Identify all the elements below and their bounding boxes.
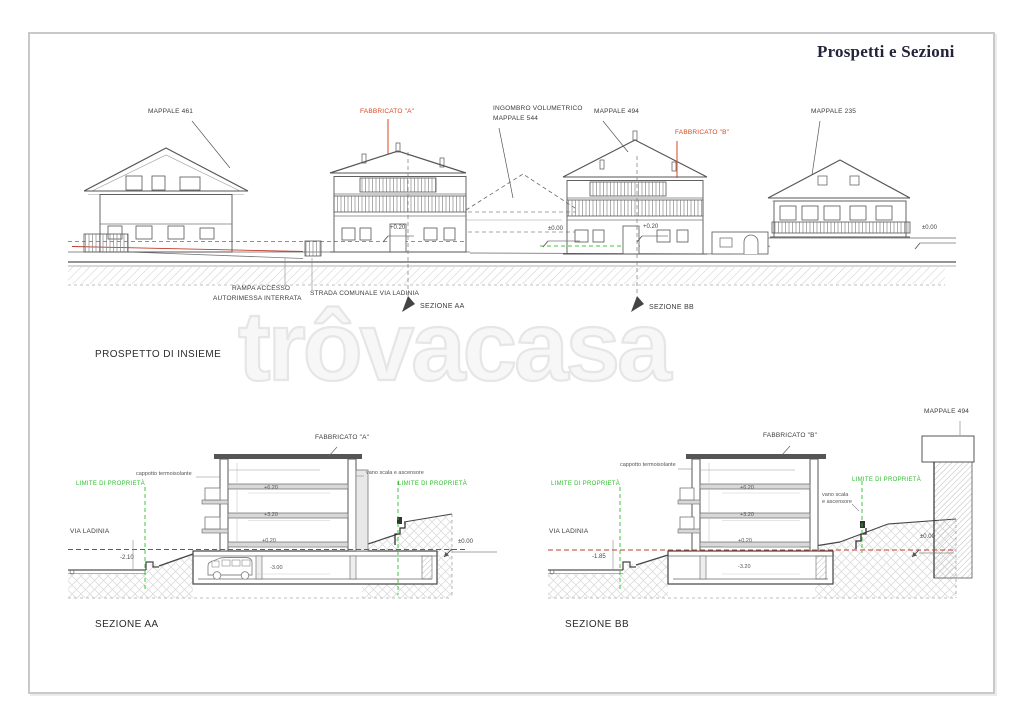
quota-right-000: ±0.00 (922, 225, 937, 232)
label-ingombro-volumetrico: INGOMBRO VOLUMETRICO (493, 105, 583, 112)
label-mappale-235: MAPPALE 235 (811, 108, 856, 115)
aa-label-fabbricato: FABBRICATO "A" (315, 434, 369, 441)
label-mappale-461: MAPPALE 461 (148, 108, 193, 115)
label-rampa-2: AUTORIMESSA INTERRATA (213, 295, 302, 302)
house-mappale-235 (768, 160, 910, 237)
bb-piano-2: +6.20 (740, 485, 754, 491)
label-rampa-1: RAMPA ACCESSO (232, 285, 290, 292)
bb-label-mappale-494: MAPPALE 494 (924, 408, 969, 415)
page-title: Prospetti e Sezioni (817, 42, 955, 62)
label-ingombro-mappale: MAPPALE 544 (493, 115, 538, 122)
aa-label-via-ladinia: VIA LADINIA (70, 528, 109, 535)
bb-piano-0: +0.20 (738, 538, 752, 544)
label-fabbricato-b: FABBRICATO "B" (675, 129, 729, 136)
ingombro-volumetrico-outline (466, 174, 578, 232)
caption-sezione-aa: SEZIONE AA (95, 619, 158, 631)
aa-piano-2: +6.20 (264, 485, 278, 491)
label-strada: STRADA COMUNALE VIA LADINIA (310, 290, 419, 297)
bb-label-vano-scala-1: vano scala (822, 492, 848, 498)
quota-b-000: ±0.00 (548, 226, 563, 233)
marker-sezione-aa: SEZIONE AA (420, 303, 465, 311)
bb-interrato: -3.20 (738, 564, 751, 570)
section-aa (68, 447, 497, 598)
aa-piano-0: +0.20 (262, 538, 276, 544)
aa-label-vano-scala: vano scala e ascensore (366, 470, 424, 476)
aa-limite-left: LIMITE DI PROPRIETÀ (76, 481, 145, 488)
bb-limite-right: LIMITE DI PROPRIETÀ (852, 477, 921, 484)
elevation-ground (68, 238, 956, 290)
aa-limite-right: LIMITE DI PROPRIETÀ (398, 481, 467, 488)
aa-label-cappotto: cappotto termoisolante (136, 471, 192, 477)
annex-garages (712, 232, 768, 254)
house-mappale-461 (84, 148, 248, 252)
house-fabbricato-b (563, 131, 707, 254)
bb-label-via-ladinia: VIA LADINIA (549, 528, 588, 535)
caption-prospetto: PROSPETTO DI INSIEME (95, 349, 221, 361)
aa-interrato: -3.00 (270, 565, 283, 571)
drawing-sheet: Prospetti e Sezioni trôvacasa MAPPALE 46… (0, 0, 1024, 723)
quota-a-020: +0.20 (390, 225, 405, 232)
aa-quota-zero: ±0.00 (458, 539, 473, 546)
bb-label-fabbricato: FABBRICATO "B" (763, 432, 817, 439)
quota-b-020: +0.20 (643, 224, 658, 231)
marker-sezione-bb: SEZIONE BB (649, 304, 694, 312)
label-mappale-494: MAPPALE 494 (594, 108, 639, 115)
bb-label-vano-scala-2: e ascensore (822, 499, 852, 505)
aa-quota-via: -2.10 (120, 555, 134, 562)
aa-piano-1: +3.20 (264, 512, 278, 518)
label-fabbricato-a: FABBRICATO "A" (360, 108, 414, 115)
bb-quota-via: -1.85 (592, 554, 606, 561)
bb-limite-left: LIMITE DI PROPRIETÀ (551, 481, 620, 488)
bb-piano-1: +3.20 (740, 512, 754, 518)
bb-quota-zero: ±0.00 (920, 534, 935, 541)
caption-sezione-bb: SEZIONE BB (565, 619, 629, 631)
section-bb (548, 421, 974, 598)
bb-label-cappotto: cappotto termoisolante (620, 462, 676, 468)
